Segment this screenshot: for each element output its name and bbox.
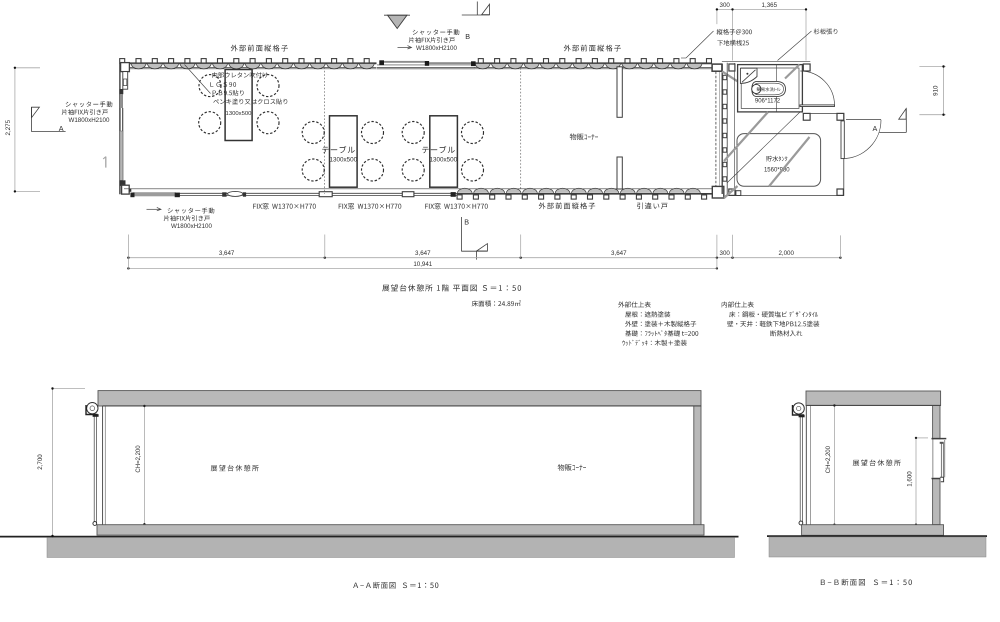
svg-text:CH=2,200: CH=2,200 [136, 445, 142, 473]
svg-text:910: 910 [932, 85, 939, 96]
svg-text:3,647: 3,647 [415, 250, 431, 257]
svg-text:B: B [464, 218, 469, 227]
svg-text:A: A [59, 124, 64, 133]
svg-text:1,600: 1,600 [906, 471, 913, 487]
svg-text:2,000: 2,000 [778, 250, 794, 257]
svg-text:W1800xH2100: W1800xH2100 [171, 223, 212, 230]
svg-text:A: A [873, 124, 878, 133]
svg-text:1300x500: 1300x500 [226, 111, 253, 117]
svg-text:W1800xH2100: W1800xH2100 [69, 117, 110, 124]
svg-text:10,941: 10,941 [413, 261, 432, 268]
svg-text:CH=2,200: CH=2,200 [826, 445, 832, 473]
svg-text:3,647: 3,647 [611, 250, 627, 257]
svg-text:1300x500: 1300x500 [429, 157, 457, 164]
svg-text:2,275: 2,275 [5, 119, 12, 135]
svg-text:1,365: 1,365 [762, 2, 778, 9]
svg-text:W1800xH2100: W1800xH2100 [416, 45, 457, 52]
svg-text:3,647: 3,647 [219, 250, 235, 257]
svg-text:2,700: 2,700 [37, 454, 44, 470]
svg-text:1300x500: 1300x500 [329, 157, 357, 164]
svg-text:300: 300 [720, 250, 731, 257]
svg-text:B: B [465, 32, 470, 41]
svg-text:300: 300 [720, 2, 731, 9]
svg-text:1560*980: 1560*980 [764, 167, 790, 173]
svg-text:906*1172: 906*1172 [755, 99, 781, 105]
